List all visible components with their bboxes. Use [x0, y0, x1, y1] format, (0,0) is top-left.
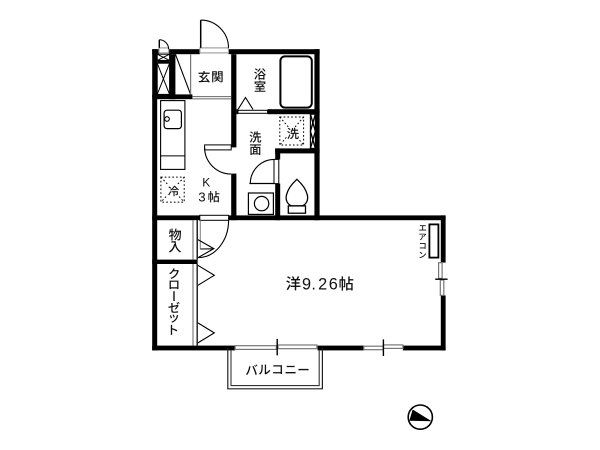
svg-text:.: . — [311, 276, 316, 294]
svg-text:K: K — [202, 175, 210, 189]
svg-text:2: 2 — [318, 276, 327, 294]
svg-text:3: 3 — [198, 190, 205, 205]
svg-text:6: 6 — [329, 276, 338, 294]
svg-text:9: 9 — [302, 276, 311, 294]
